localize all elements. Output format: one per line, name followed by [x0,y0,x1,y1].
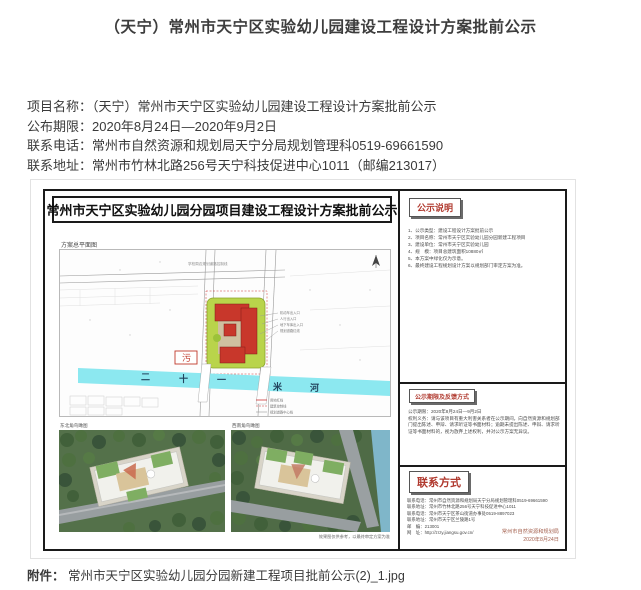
section-contact: 联系方式 联系电话：常州市自然资源和规划局天宁分局规划管理科0519-69661… [400,467,567,549]
note-item: 6、最终建设工程规划设计方案以规划部门审定方案为准。 [408,262,563,269]
notice-poster-image: 常州市天宁区实验幼儿园分园项目建设工程设计方案批前公示 方案总平面图 [30,179,576,559]
info-label: 联系地址： [27,158,92,173]
road-east-west [60,270,285,283]
section-notes: 公示说明 1、公示类型：建设工程设计方案批前公示 2、项目名称：常州市天宁区实验… [400,191,567,382]
svg-text:人行出入口: 人行出入口 [280,316,296,321]
notice-page: （天宁）常州市天宁区实验幼儿园建设工程设计方案批前公示 项目名称：（天宁）常州市… [0,0,641,590]
aerial-rendering-southwest [231,430,390,532]
aerial-rendering-northeast [59,430,225,532]
site-plan-drawing: 学校周边规划道路控制线 [60,250,390,416]
site-plan-map: 学校周边规划道路控制线 [59,249,391,417]
poster-right-column: 公示说明 1、公示类型：建设工程设计方案批前公示 2、项目名称：常州市天宁区实验… [398,191,567,549]
svg-text:米: 米 [272,381,283,392]
note-item: 4、规 模：项目总建筑面积10880㎡ [408,248,563,255]
north-arrow-icon [372,255,380,268]
rendering-label-northeast: 东北角鸟瞰图 [60,423,88,429]
svg-text:河: 河 [310,382,319,393]
svg-text:污: 污 [182,352,191,363]
attachment-line: 附件： 常州市天宁区实验幼儿园分园新建工程项目批前公示(2)_1.jpg [27,565,405,584]
page-title: （天宁）常州市天宁区实验幼儿园建设工程设计方案批前公示 [0,15,641,37]
section-notes-title: 公示说明 [409,198,461,217]
feedback-text: 公示期限：2020年8月24日—9月2日 权利义务：请与该项目有重大利害关系者在… [408,409,562,435]
svg-text:十: 十 [179,373,188,384]
note-item: 2、项目名称：常州市天宁区实验幼儿园分园新建工程项目 [408,234,563,241]
poster-frame: 常州市天宁区实验幼儿园分园项目建设工程设计方案批前公示 方案总平面图 [43,189,567,551]
svg-text:规划道路中心线: 规划道路中心线 [270,410,294,415]
control-line-note: 学校周边规划道路控制线 [188,261,228,266]
svg-text:地下车库出入口: 地下车库出入口 [280,322,303,327]
info-value: 常州市自然资源和规划局天宁分局规划管理科0519-69661590 [92,138,443,153]
river-band [78,368,390,396]
info-label: 联系电话： [27,138,92,153]
attachment-label: 附件： [27,569,65,583]
info-contact-phone: 联系电话：常州市自然资源和规划局天宁分局规划管理科0519-69661590 [27,136,445,156]
sewage-marker: 污 [175,351,197,364]
feedback-rights: 权利义务：请与该项目有重大利害关系者在公示期间，向自然资源和规划部门提出陈述、申… [408,416,562,436]
svg-text:建筑控制线: 建筑控制线 [270,404,287,409]
info-value: 2020年8月24日—2020年9月2日 [92,119,277,134]
svg-text:一: 一 [217,375,226,385]
svg-text:机动车出入口: 机动车出入口 [280,310,300,315]
feedback-period: 公示期限：2020年8月24日—9月2日 [408,409,562,416]
agency-name: 常州市自然资源和规划局 [502,529,559,537]
notice-info-block: 项目名称：（天宁）常州市天宁区实验幼儿园建设工程设计方案批前公示 公布期限：20… [27,97,445,175]
svg-text:用地红线: 用地红线 [270,398,284,403]
info-label: 项目名称： [27,99,92,114]
rendering-label-southwest: 西南角鸟瞰图 [232,423,260,429]
section-feedback-title: 公示期限及反馈方式 [409,389,475,403]
svg-text:规划道路红线: 规划道路红线 [280,328,300,333]
note-item: 3、建设单位：常州市天宁区实验幼儿园 [408,241,563,248]
info-publish-period: 公布期限：2020年8月24日—2020年9月2日 [27,117,445,137]
map-legend: 用地红线 建筑控制线 规划道路中心线 [256,398,294,415]
site-callouts: 机动车出入口 人行出入口 地下车库出入口 规划道路红线 [260,310,303,342]
south-parcels [70,396,158,415]
issuing-agency: 常州市自然资源和规划局 2020年8月24日 [502,529,559,544]
note-item: 5、本方案中绿化仅为示意。 [408,255,563,262]
site-plan-label: 方案总平面图 [61,240,97,249]
info-label: 公布期限： [27,119,92,134]
poster-banner-title: 常州市天宁区实验幼儿园分园项目建设工程设计方案批前公示 [52,196,392,223]
section-contact-title: 联系方式 [409,471,469,493]
rendering-disclaimer: 效果图仅供参考，以最终审定方案为准 [231,534,390,540]
info-value: （天宁）常州市天宁区实验幼儿园建设工程设计方案批前公示 [92,99,437,114]
attachment-filename: 常州市天宁区实验幼儿园分园新建工程项目批前公示(2)_1.jpg [68,569,405,583]
section-feedback: 公示期限及反馈方式 公示期限：2020年8月24日—9月2日 权利义务：请与该项… [400,384,567,465]
info-value: 常州市竹林北路256号天宁科技促进中心1011（邮编213017） [92,158,445,173]
note-item: 1、公示类型：建设工程设计方案批前公示 [408,227,563,234]
issue-date: 2020年8月24日 [502,537,559,545]
info-contact-address: 联系地址：常州市竹林北路256号天宁科技促进中心1011（邮编213017） [27,156,445,176]
svg-text:二: 二 [141,372,150,382]
info-project-name: 项目名称：（天宁）常州市天宁区实验幼儿园建设工程设计方案批前公示 [27,97,445,117]
notes-list: 1、公示类型：建设工程设计方案批前公示 2、项目名称：常州市天宁区实验幼儿园分园… [408,227,563,269]
